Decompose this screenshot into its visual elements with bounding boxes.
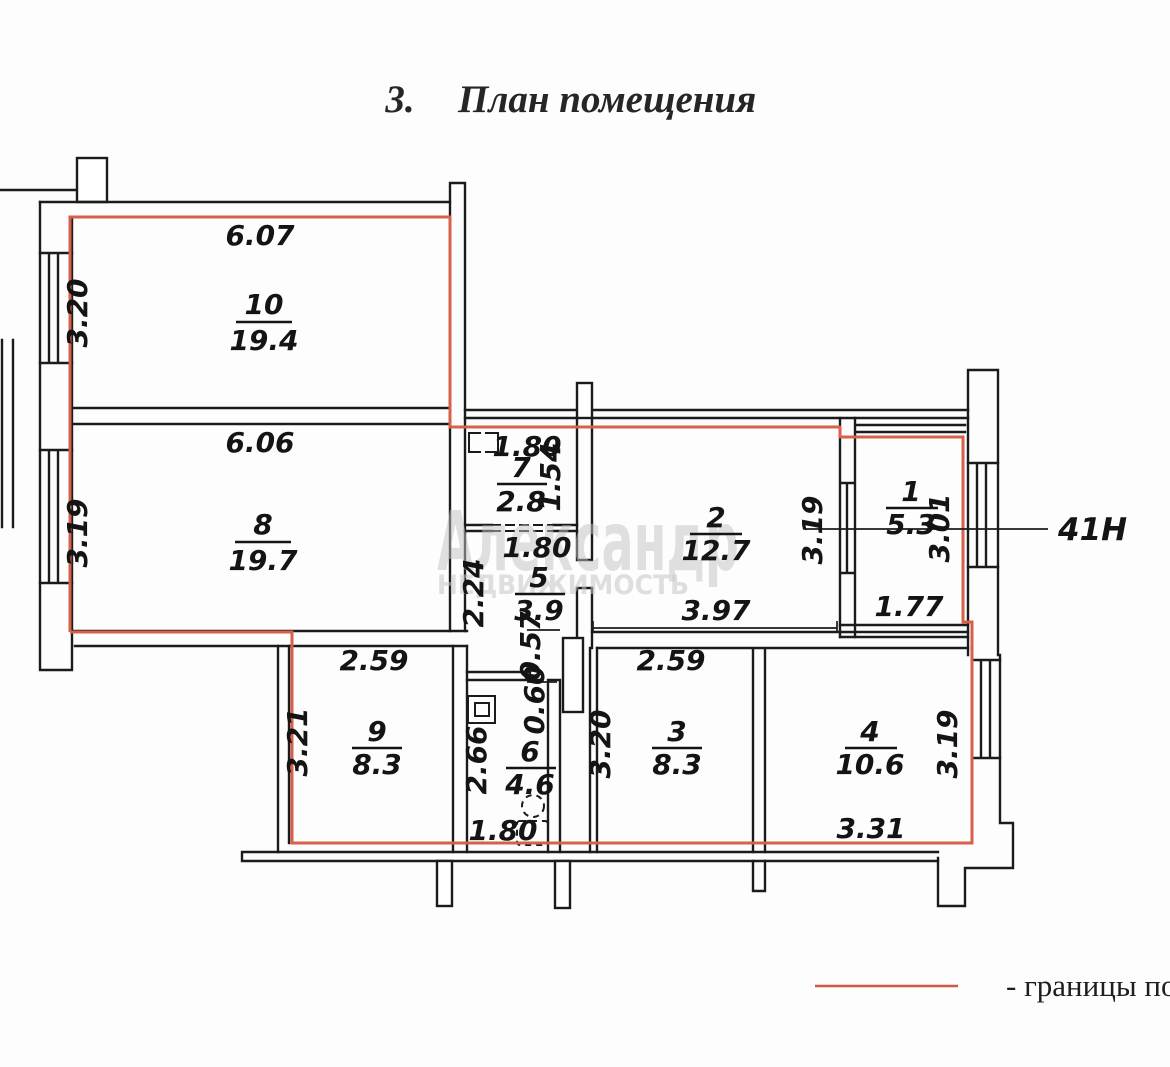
room2-area: 12.7	[681, 534, 751, 567]
wall-rooms3-4	[753, 650, 765, 852]
dim-room2-width: 3.97	[681, 594, 751, 627]
dim-room1-width: 1.77	[874, 590, 944, 623]
washer-drum-icon	[475, 703, 489, 716]
wall-right-upper	[968, 370, 998, 655]
wall-protrusion-top-left	[77, 158, 107, 202]
dim-room8-width: 6.06	[225, 426, 294, 459]
dim-room10-height: 3.20	[61, 278, 94, 347]
dim-room5-height: 2.24	[457, 558, 490, 627]
dim-room6-height: 2.66	[460, 725, 493, 794]
title-number: 3.	[384, 78, 414, 121]
window-room4	[972, 660, 1000, 758]
room10-area: 19.4	[229, 324, 298, 357]
page-title: 3. План помещения	[384, 78, 756, 121]
wall-pillar-top-middle	[577, 383, 592, 418]
dim-room2-height: 3.19	[796, 495, 829, 564]
room-label-4: 4 10.6	[835, 715, 904, 781]
wall-room1-top	[857, 425, 965, 432]
dim-room9-height: 3.21	[281, 707, 314, 776]
floor-plan-drawing: 3. План помещения	[0, 0, 1170, 1067]
room6-number: 6	[520, 735, 539, 768]
room2-number: 2	[706, 501, 725, 534]
room5-number: 5	[529, 561, 548, 594]
room3-number: 3	[667, 715, 686, 748]
room-label-9: 9 8.3	[352, 715, 402, 781]
legend-label: - границы по	[1006, 968, 1170, 1003]
wall-stub-bottom-2	[555, 861, 570, 908]
dim-room3-height: 3.20	[584, 709, 617, 778]
unit-callout-label: 41Н	[1057, 512, 1127, 548]
room4-number: 4	[859, 715, 879, 748]
room9-number: 9	[367, 715, 386, 748]
dim-room3-width: 2.59	[636, 644, 705, 677]
dim-room1-height: 3.01	[923, 493, 956, 562]
dim-room6-width: 1.80	[468, 814, 537, 847]
room-label-8: 8 19.7	[228, 508, 298, 577]
dim-room5-width: 1.80	[502, 531, 571, 564]
room1-number: 1	[901, 475, 920, 508]
legend: - границы по	[815, 968, 1170, 1003]
floor-plan-page: 3. План помещения	[0, 0, 1170, 1067]
room6-area: 4.6	[504, 768, 555, 801]
room9-area: 8.3	[352, 748, 402, 781]
dim-passage-060: 0.60	[518, 665, 551, 734]
dim-room7-height: 1.54	[534, 442, 567, 511]
room3-area: 8.3	[652, 748, 702, 781]
title-text: План помещения	[457, 78, 756, 121]
room-label-3: 3 8.3	[652, 715, 702, 781]
washer-icon	[468, 696, 495, 723]
left-edge-wall-fragment	[2, 340, 13, 527]
dim-room4-height: 3.19	[931, 709, 964, 778]
room10-number: 10	[245, 288, 284, 321]
wall-room1-left	[840, 418, 855, 637]
dim-room4-width: 3.31	[836, 812, 905, 845]
window-room1	[968, 463, 998, 567]
room8-area: 19.7	[228, 544, 298, 577]
dim-room9-width: 2.59	[339, 644, 408, 677]
room8-number: 8	[253, 508, 272, 541]
wall-rooms10-8	[72, 408, 450, 424]
room4-area: 10.6	[835, 748, 904, 781]
wall-bottom	[242, 852, 938, 861]
entrance-door	[563, 638, 583, 712]
dimension-labels: 6.07 3.20 6.06 3.19 1.80 1.54 1.80 2.24 …	[61, 219, 964, 847]
wall-stub-bottom-3	[753, 861, 765, 891]
wall-stub-bottom-1	[437, 861, 452, 906]
room-label-10: 10 19.4	[229, 288, 298, 357]
dim-room8-height: 3.19	[61, 498, 94, 567]
dim-room10-width: 6.07	[225, 219, 295, 252]
